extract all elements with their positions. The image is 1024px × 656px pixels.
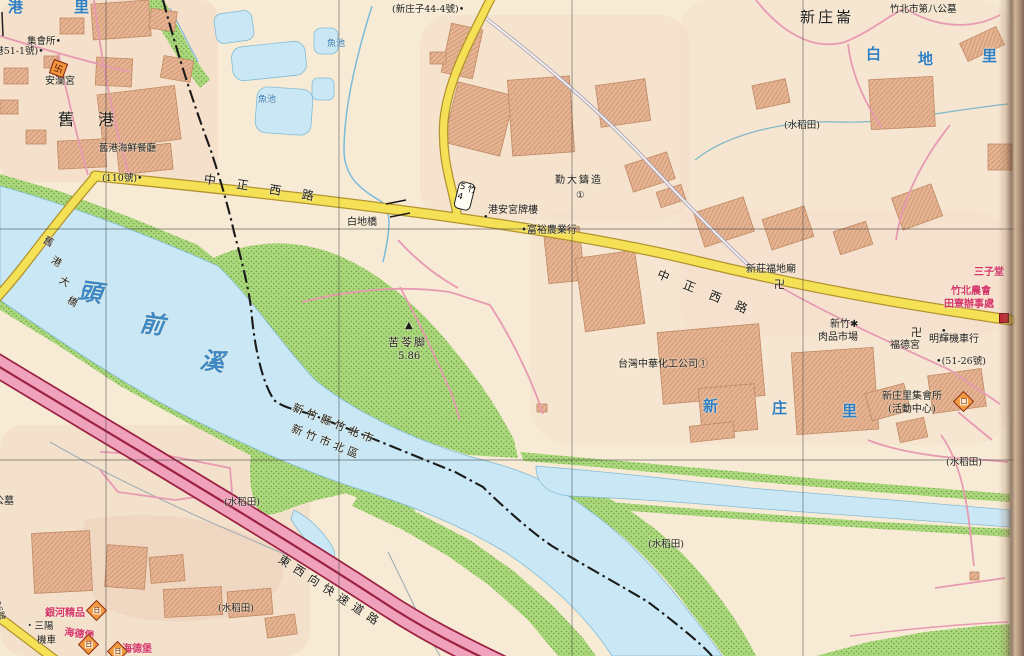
fishpond-2: [230, 40, 307, 82]
edge-mark-topleft: [2, 12, 3, 36]
fishpond-1: [213, 10, 255, 45]
fishpond-5: [312, 78, 334, 100]
page-fold-shadow: [998, 0, 1024, 656]
fishpond-4: [314, 28, 338, 54]
map-canvas: 港里集會所•(舊港51-1號)•安瀾宮舊港舊港海鮮餐廳(110號)•中正西路白地…: [0, 0, 1024, 656]
fishpond-3: [254, 86, 313, 136]
map-terrain: [0, 0, 1024, 656]
